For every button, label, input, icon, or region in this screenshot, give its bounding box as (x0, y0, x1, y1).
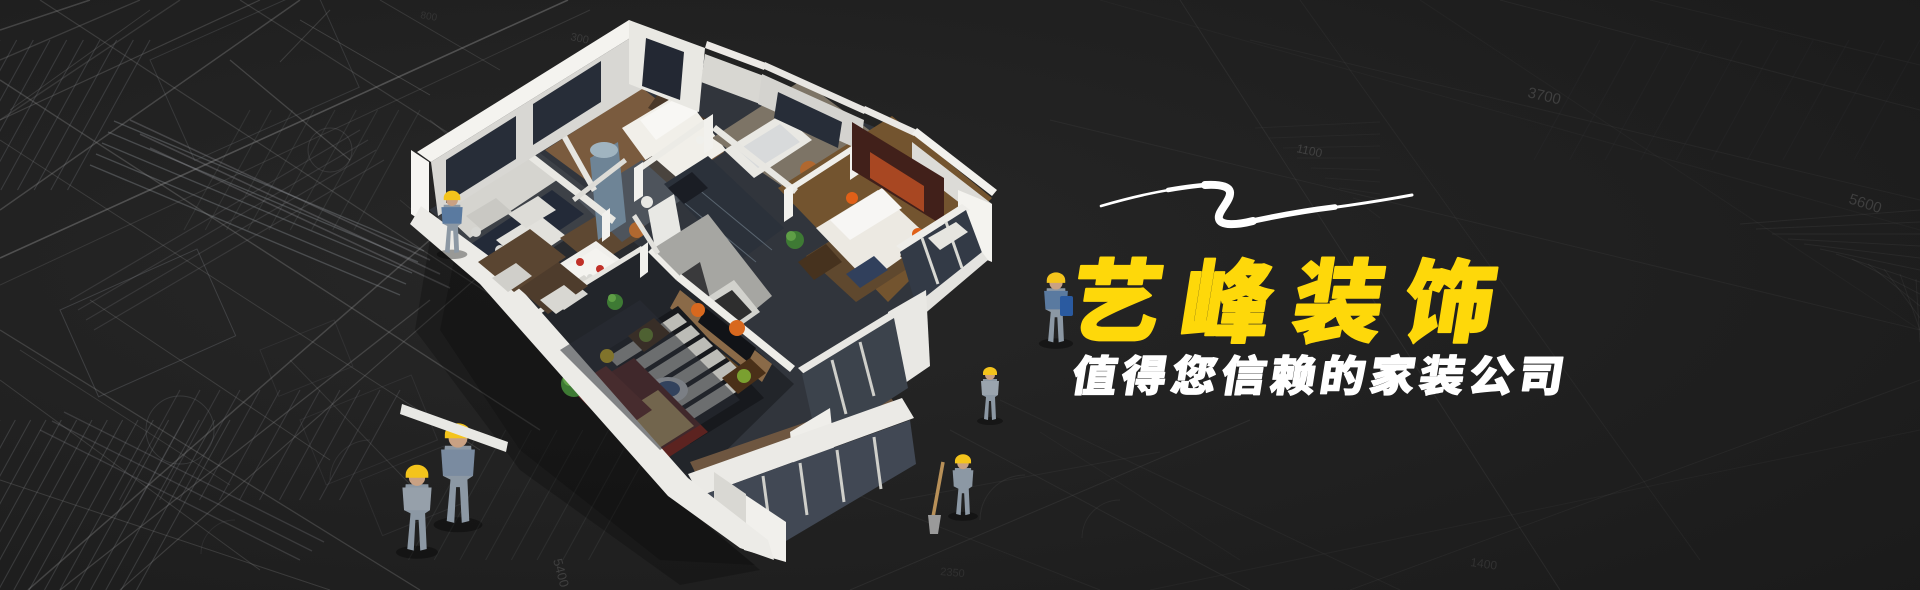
svg-text:2350: 2350 (940, 566, 965, 580)
